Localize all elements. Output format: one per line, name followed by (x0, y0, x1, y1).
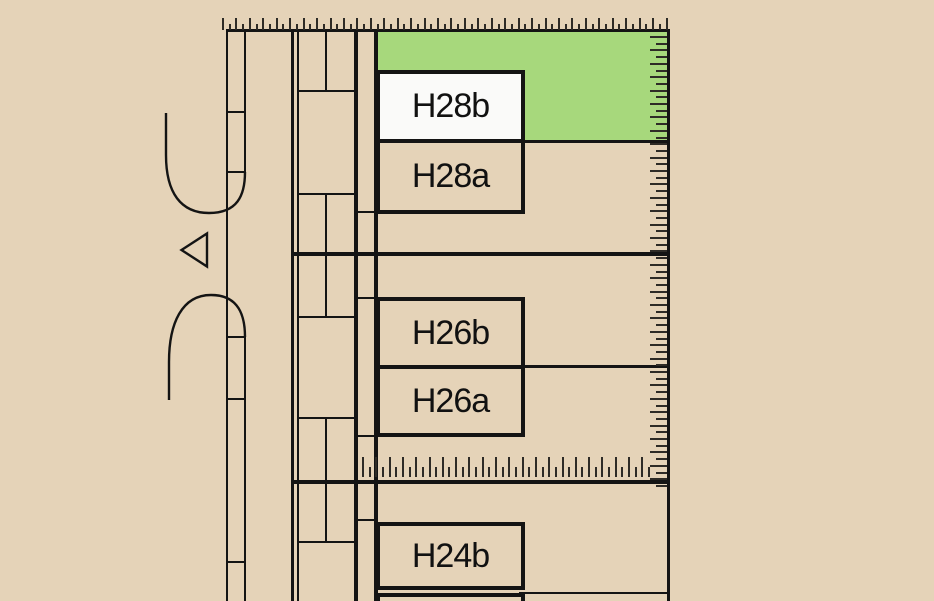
plot-box-h24a-partial[interactable] (376, 593, 525, 601)
plot-label-h26b: H26b (412, 314, 489, 353)
plot-label-h28a: H28a (412, 157, 489, 196)
plot-label-h24b: H24b (412, 537, 489, 576)
plot-h28a[interactable]: H28a (380, 143, 521, 210)
plot-boxes: H28b H28a H26b H26a H24b (0, 0, 934, 601)
plot-label-h28b: H28b (412, 87, 489, 126)
plot-h28b[interactable]: H28b (380, 74, 521, 139)
plot-h26b[interactable]: H26b (380, 301, 521, 365)
plot-label-h26a: H26a (412, 382, 489, 421)
site-plan-map: H28b H28a H26b H26a H24b (0, 0, 934, 601)
plot-h24b[interactable]: H24b (376, 522, 525, 590)
plot-h26a[interactable]: H26a (380, 369, 521, 433)
